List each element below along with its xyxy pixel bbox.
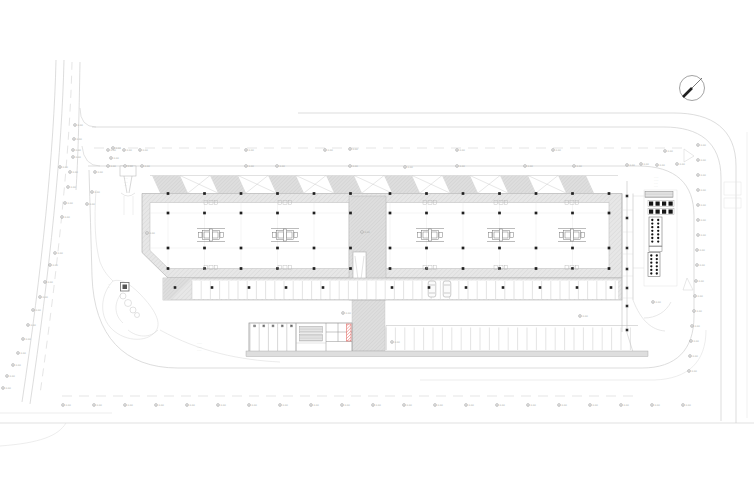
site-plan-svg: 0.000.000.000.000.000.000.000.000.000.00… xyxy=(0,0,754,500)
spot-marker: 0.00 xyxy=(465,404,475,407)
canopy-hatched-bay xyxy=(210,176,246,194)
column-dot xyxy=(425,192,428,195)
spot-marker: 0.00 xyxy=(695,280,705,283)
interior-east-wing xyxy=(386,203,609,269)
spot-marker-label: 0.00 xyxy=(344,404,350,407)
column-dot xyxy=(167,192,170,195)
road-left-edge xyxy=(30,60,64,404)
spot-marker-label: 0.00 xyxy=(459,165,465,168)
spot-marker: 0.00 xyxy=(39,296,49,299)
spot-marker-label: 0.00 xyxy=(406,404,412,407)
spot-marker: 0.00 xyxy=(626,164,636,167)
equipment-dot xyxy=(651,237,653,239)
spot-marker-label: 0.00 xyxy=(149,232,155,235)
equipment-dot xyxy=(650,265,652,267)
column-dot xyxy=(248,286,251,289)
column-dot xyxy=(203,212,206,215)
spot-marker: 0.00 xyxy=(349,165,359,168)
spot-marker: 0.00 xyxy=(496,404,506,407)
spot-marker-label: 0.00 xyxy=(25,338,31,341)
spot-marker-label: 0.00 xyxy=(72,171,78,174)
spot-marker-label: 0.00 xyxy=(110,165,116,168)
road-arrow-side xyxy=(683,278,693,290)
column-dot xyxy=(276,212,279,215)
spot-marker-label: 0.00 xyxy=(696,310,702,313)
spot-marker: 0.00 xyxy=(456,149,466,152)
column-dot xyxy=(608,247,611,250)
stall-bumper xyxy=(263,325,265,327)
column-dot xyxy=(626,305,628,307)
stall-bumper xyxy=(291,325,293,327)
equipment-dot xyxy=(650,262,652,264)
equipment-dot xyxy=(650,269,652,271)
column-dot xyxy=(240,192,243,195)
canopy-hatched-bay xyxy=(326,176,362,194)
spot-marker-label: 0.00 xyxy=(700,219,706,222)
spot-marker-label: 0.00 xyxy=(700,234,706,237)
equipment-unit xyxy=(656,202,660,206)
equipment-dot xyxy=(656,269,658,271)
spot-marker-label: 0.00 xyxy=(144,165,150,168)
spot-marker: 0.00 xyxy=(697,144,707,147)
spot-marker: 0.00 xyxy=(697,234,707,237)
spot-marker-label: 0.00 xyxy=(15,364,21,367)
canopy-brace xyxy=(304,176,326,194)
spot-marker: 0.00 xyxy=(620,404,630,407)
column-dot xyxy=(626,287,628,289)
equipment-unit xyxy=(669,202,673,206)
spot-marker: 0.00 xyxy=(434,404,444,407)
spot-marker: 0.00 xyxy=(123,149,133,152)
spot-marker-label: 0.00 xyxy=(698,280,704,283)
equipment-yard xyxy=(633,190,677,286)
spot-marker-label: 0.00 xyxy=(655,301,661,304)
spot-marker-label: 0.00 xyxy=(42,296,48,299)
column-dot xyxy=(535,267,538,270)
spot-marker-label: 0.00 xyxy=(142,149,148,152)
spot-marker-label: 0.00 xyxy=(345,312,351,315)
canopy-brace xyxy=(246,176,268,194)
spot-marker: 0.00 xyxy=(69,171,79,174)
spot-marker: 0.00 xyxy=(697,219,707,222)
canopy-hatched-bay xyxy=(268,176,304,194)
stair-run-2 xyxy=(300,335,323,342)
spot-marker: 0.00 xyxy=(696,249,706,252)
spot-marker: 0.00 xyxy=(664,150,674,153)
spot-marker: 0.00 xyxy=(17,352,27,355)
column-dot xyxy=(462,212,465,215)
column-dot xyxy=(498,212,501,215)
spot-marker-label: 0.00 xyxy=(220,404,226,407)
spot-marker-label: 0.00 xyxy=(654,404,660,407)
spot-marker: 0.00 xyxy=(690,340,700,343)
canopy-hatched-bay xyxy=(500,176,536,194)
spot-marker-label: 0.00 xyxy=(94,191,100,194)
spot-marker-label: 0.00 xyxy=(158,404,164,407)
ext-curve-out xyxy=(633,300,665,331)
column-dot xyxy=(167,267,170,270)
spot-marker: 0.00 xyxy=(74,124,84,127)
car xyxy=(443,281,451,297)
spot-marker: 0.00 xyxy=(59,166,69,169)
spot-marker-label: 0.00 xyxy=(499,404,505,407)
column-dot xyxy=(502,286,505,289)
spot-marker-label: 0.00 xyxy=(30,324,36,327)
column-dot xyxy=(285,286,288,289)
spot-marker-label: 0.00 xyxy=(248,165,254,168)
spot-marker-label: 0.00 xyxy=(282,404,288,407)
spot-marker: 0.00 xyxy=(112,147,122,150)
column-dot xyxy=(211,286,214,289)
column-dot xyxy=(313,212,316,215)
spot-marker-label: 0.00 xyxy=(89,203,95,206)
column-dot xyxy=(498,247,501,250)
spot-marker-label: 0.00 xyxy=(555,149,561,152)
tree xyxy=(125,300,132,307)
spot-marker-label: 0.00 xyxy=(700,204,706,207)
column-dot xyxy=(571,192,574,195)
equipment-dot xyxy=(651,230,653,232)
canopy-bays xyxy=(152,176,594,194)
spot-marker: 0.00 xyxy=(527,404,537,407)
canopy-brace xyxy=(536,176,558,194)
spot-marker-label: 0.00 xyxy=(67,202,73,205)
spot-marker: 0.00 xyxy=(62,404,72,407)
equipment-dot xyxy=(650,254,652,256)
column-dot xyxy=(389,247,392,250)
spot-marker: 0.00 xyxy=(94,171,104,174)
spot-marker-label: 0.00 xyxy=(691,370,697,373)
landscape-objects xyxy=(120,283,140,318)
equipment-unit xyxy=(662,202,666,206)
column-dot xyxy=(313,192,316,195)
column-dot xyxy=(462,247,465,250)
equipment-unit xyxy=(669,210,673,214)
spot-marker-label: 0.00 xyxy=(313,404,319,407)
spot-marker-label: 0.00 xyxy=(699,249,705,252)
stall-bumper xyxy=(281,325,283,327)
upper-curve xyxy=(95,190,100,262)
spot-marker-label: 0.00 xyxy=(77,124,83,127)
column-dot xyxy=(626,195,628,197)
north-arrow-needle xyxy=(683,88,692,97)
column-dot xyxy=(571,212,574,215)
spot-marker: 0.00 xyxy=(552,149,562,152)
spot-marker: 0.00 xyxy=(72,156,82,159)
spot-marker: 0.00 xyxy=(110,157,120,160)
spot-marker: 0.00 xyxy=(72,149,82,152)
lower-parking-row xyxy=(386,326,638,351)
spot-marker: 0.00 xyxy=(49,264,59,267)
spot-marker: 0.00 xyxy=(217,404,227,407)
column-dot xyxy=(349,192,352,195)
canopy-brace xyxy=(420,176,442,194)
equipment-dot xyxy=(657,226,659,228)
spot-marker: 0.00 xyxy=(245,149,255,152)
spot-marker: 0.00 xyxy=(404,166,414,169)
column-dot xyxy=(276,192,279,195)
equipment-dot xyxy=(657,237,659,239)
spot-marker-label: 0.00 xyxy=(64,216,70,219)
interior-west-wing xyxy=(150,203,349,269)
spot-marker-label: 0.00 xyxy=(623,404,629,407)
spot-marker-label: 0.00 xyxy=(352,148,358,151)
gate-house xyxy=(120,166,136,215)
spot-marker-label: 0.00 xyxy=(115,147,121,150)
equipment-unit xyxy=(656,210,660,214)
spot-marker: 0.00 xyxy=(651,404,661,407)
approach-curve xyxy=(100,262,113,281)
equipment-dot xyxy=(656,262,658,264)
spot-marker-label: 0.00 xyxy=(394,341,400,344)
road-arrow-top xyxy=(684,149,694,162)
spot-marker: 0.00 xyxy=(341,404,351,407)
equipment-dot xyxy=(651,233,653,235)
tree xyxy=(120,293,126,299)
column-dot xyxy=(425,247,428,250)
spot-marker-label: 0.00 xyxy=(52,264,58,267)
equipment-unit xyxy=(649,210,653,214)
spot-marker-label: 0.00 xyxy=(685,404,691,407)
spot-marker-label: 0.00 xyxy=(468,404,474,407)
equipment-dot xyxy=(650,272,652,274)
equipment-dot xyxy=(656,272,658,274)
spot-marker: 0.00 xyxy=(697,174,707,177)
spot-marker: 0.00 xyxy=(688,370,698,373)
spot-marker: 0.00 xyxy=(589,404,599,407)
column-dot xyxy=(240,212,243,215)
spot-marker-label: 0.00 xyxy=(20,352,26,355)
spot-marker: 0.00 xyxy=(689,355,699,358)
column-dot xyxy=(389,192,392,195)
spot-marker: 0.00 xyxy=(349,148,359,151)
column-dot xyxy=(389,212,392,215)
column-dot xyxy=(240,247,243,250)
parking-band xyxy=(163,278,622,300)
connector-lower-band xyxy=(352,300,385,351)
column-dot xyxy=(391,286,394,289)
column-dot xyxy=(428,286,431,289)
spot-marker: 0.00 xyxy=(682,404,692,407)
equipment-dot xyxy=(657,222,659,224)
canopy-hatched-bay xyxy=(384,176,420,194)
spot-marker: 0.00 xyxy=(32,309,42,312)
column-dot xyxy=(167,212,170,215)
spot-marker-label: 0.00 xyxy=(248,149,254,152)
column-dot xyxy=(462,267,465,270)
spot-marker-label: 0.00 xyxy=(694,325,700,328)
annotation-text: ····· xyxy=(654,185,658,188)
spot-marker: 0.00 xyxy=(44,281,54,284)
spot-marker-label: 0.00 xyxy=(5,387,11,390)
spot-marker-label: 0.00 xyxy=(35,309,41,312)
column-dot xyxy=(465,286,468,289)
spot-marker-label: 0.00 xyxy=(699,264,705,267)
spot-marker-label: 0.00 xyxy=(659,164,665,167)
equipment-dot xyxy=(651,219,653,221)
spot-marker-label: 0.00 xyxy=(643,163,649,166)
spot-marker: 0.00 xyxy=(12,364,22,367)
spot-marker-label: 0.00 xyxy=(700,144,706,147)
equip-tie xyxy=(649,247,662,252)
ext-foot xyxy=(627,333,633,352)
spot-marker: 0.00 xyxy=(54,252,64,255)
spot-marker: 0.00 xyxy=(697,189,707,192)
spot-marker: 0.00 xyxy=(279,404,289,407)
spot-marker-label: 0.00 xyxy=(629,164,635,167)
spot-marker-label: 0.00 xyxy=(251,404,257,407)
spot-marker: 0.00 xyxy=(2,387,12,390)
gate-arc xyxy=(121,193,135,196)
lower-stall-dividers xyxy=(386,328,630,351)
spot-marker: 0.00 xyxy=(361,231,371,234)
column-dot xyxy=(240,267,243,270)
spot-marker: 0.00 xyxy=(155,404,165,407)
spot-marker-label: 0.00 xyxy=(527,165,533,168)
canopy-hatched-bay xyxy=(152,176,188,194)
spot-marker-label: 0.00 xyxy=(76,138,82,141)
spot-marker: 0.00 xyxy=(656,164,666,167)
annotation-text: ··· xyxy=(108,286,111,289)
column-dot xyxy=(313,267,316,270)
spot-marker: 0.00 xyxy=(652,301,662,304)
spot-marker-label: 0.00 xyxy=(65,404,71,407)
column-dot xyxy=(322,286,325,289)
tree xyxy=(135,313,140,318)
turnaround-outer-arc xyxy=(128,330,158,336)
spot-marker: 0.00 xyxy=(276,165,286,168)
spot-marker: 0.00 xyxy=(248,404,258,407)
spot-marker: 0.00 xyxy=(93,404,103,407)
spot-marker: 0.00 xyxy=(67,186,77,189)
spot-marker: 0.00 xyxy=(310,404,320,407)
equipment-dot xyxy=(657,233,659,235)
column-dot xyxy=(349,212,352,215)
spot-marker-label: 0.00 xyxy=(576,165,582,168)
spot-marker: 0.00 xyxy=(391,341,401,344)
spot-marker-label: 0.00 xyxy=(279,165,285,168)
canopy-brace xyxy=(188,176,210,194)
column-dot xyxy=(535,247,538,250)
annotation-text: ···· xyxy=(124,184,127,187)
equipment-unit xyxy=(662,210,666,214)
spot-marker: 0.00 xyxy=(324,149,334,152)
spot-marker: 0.00 xyxy=(6,375,16,378)
equipment-dot xyxy=(656,258,658,260)
road-bottom-left-curve xyxy=(0,423,66,446)
column-dot xyxy=(608,192,611,195)
spot-marker-label: 0.00 xyxy=(327,149,333,152)
column-dot xyxy=(349,247,352,250)
spot-marker-label: 0.00 xyxy=(582,315,588,318)
spot-marker-label: 0.00 xyxy=(113,157,119,160)
canopy-hatched-bay xyxy=(558,176,594,194)
equipment-dot xyxy=(657,219,659,221)
gate-fan-right xyxy=(129,176,132,193)
column-dot xyxy=(349,267,352,270)
spot-marker: 0.00 xyxy=(640,163,650,166)
spot-marker: 0.00 xyxy=(697,204,707,207)
spot-marker-label: 0.00 xyxy=(667,150,673,153)
annotation-text: ······ xyxy=(197,349,202,352)
spot-marker: 0.00 xyxy=(124,404,134,407)
equipment-dot xyxy=(651,226,653,228)
spot-marker-label: 0.00 xyxy=(9,375,15,378)
spot-marker-label: 0.00 xyxy=(189,404,195,407)
column-dot xyxy=(576,286,579,289)
column-dot xyxy=(626,329,628,331)
drawing-sheet: 0.000.000.000.000.000.000.000.000.000.00… xyxy=(0,0,754,500)
retaining-wall xyxy=(246,351,648,357)
column-dot xyxy=(626,268,628,270)
north-arrow xyxy=(680,76,705,101)
car xyxy=(428,281,436,297)
spot-marker-label: 0.00 xyxy=(407,166,413,169)
building-main xyxy=(120,166,677,352)
spot-marker-label: 0.00 xyxy=(700,174,706,177)
equipment-dot xyxy=(657,240,659,242)
trees xyxy=(120,293,140,318)
spot-marker: 0.00 xyxy=(676,163,686,166)
spot-marker: 0.00 xyxy=(73,138,83,141)
red-highlight-element xyxy=(347,324,352,341)
column-dot xyxy=(203,192,206,195)
spot-marker: 0.00 xyxy=(694,295,704,298)
spot-marker-label: 0.00 xyxy=(62,166,68,169)
spot-marker-label: 0.00 xyxy=(364,231,370,234)
spot-marker-label: 0.00 xyxy=(437,404,443,407)
equipment-dot xyxy=(656,254,658,256)
spot-marker-label: 0.00 xyxy=(561,404,567,407)
spot-marker-label: 0.00 xyxy=(530,404,536,407)
spot-marker-label: 0.00 xyxy=(692,355,698,358)
column-dot xyxy=(313,247,316,250)
spot-marker-label: 0.00 xyxy=(693,340,699,343)
spot-marker-label: 0.00 xyxy=(459,149,465,152)
spot-marker: 0.00 xyxy=(107,165,117,168)
equipment-unit xyxy=(649,202,653,206)
equip-header-bar xyxy=(645,192,673,198)
spot-marker-label: 0.00 xyxy=(57,252,63,255)
tree xyxy=(130,307,136,313)
spot-marker: 0.00 xyxy=(696,264,706,267)
spot-marker-label: 0.00 xyxy=(700,189,706,192)
spot-marker-label: 0.00 xyxy=(126,149,132,152)
column-dot xyxy=(539,286,542,289)
column-dot xyxy=(608,267,611,270)
column-dot xyxy=(174,286,177,289)
parking-band-stall-area xyxy=(192,281,618,300)
neighbor-block-2 xyxy=(724,198,741,208)
column-dot xyxy=(389,267,392,270)
spot-marker-label: 0.00 xyxy=(70,186,76,189)
spot-marker: 0.00 xyxy=(403,404,413,407)
equip-squares xyxy=(649,202,673,214)
spot-marker: 0.00 xyxy=(579,315,589,318)
intersection-corner-2 xyxy=(82,146,100,166)
column-dot xyxy=(571,247,574,250)
spot-marker-label: 0.00 xyxy=(375,404,381,407)
equip-block-2 xyxy=(648,253,660,277)
spot-marker: 0.00 xyxy=(27,324,37,327)
spot-marker-label: 0.00 xyxy=(127,404,133,407)
spot-marker: 0.00 xyxy=(146,232,156,235)
spot-marker: 0.00 xyxy=(22,338,32,341)
spot-marker: 0.00 xyxy=(524,165,534,168)
spot-marker: 0.00 xyxy=(691,325,701,328)
spot-marker: 0.00 xyxy=(245,165,255,168)
neighbor-block-1 xyxy=(724,182,741,195)
